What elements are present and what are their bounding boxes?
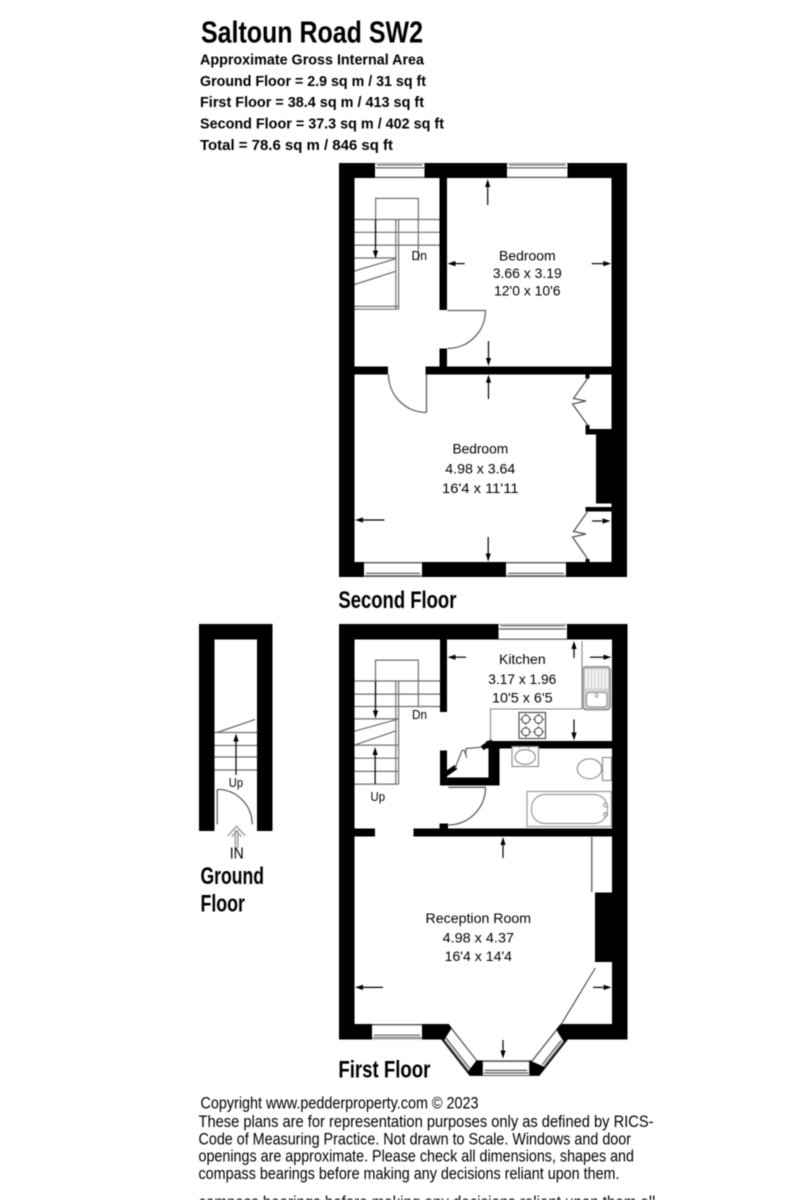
svg-text:Second Floor = 37.3 sq m / 402: Second Floor = 37.3 sq m / 402 sq ft <box>200 116 444 133</box>
svg-text:First Floor = 38.4 sq m / 413: First Floor = 38.4 sq m / 413 sq ft <box>200 94 424 111</box>
svg-text:16'4 x 14'4: 16'4 x 14'4 <box>445 948 513 964</box>
svg-text:Saltoun Road SW2: Saltoun Road SW2 <box>201 15 423 50</box>
svg-text:Code of Measuring Practice. No: Code of Measuring Practice. Not drawn to… <box>199 1129 632 1148</box>
svg-text:4.98 x 4.37: 4.98 x 4.37 <box>443 929 515 945</box>
svg-text:Ground: Ground <box>201 863 265 890</box>
svg-text:Floor: Floor <box>201 891 245 918</box>
svg-text:compass bearings before making: compass bearings before making any decis… <box>199 1164 620 1183</box>
svg-text:Up: Up <box>229 776 243 790</box>
svg-text:Bedroom: Bedroom <box>499 248 556 264</box>
svg-text:Total = 78.6 sq m / 846 sq ft: Total = 78.6 sq m / 846 sq ft <box>200 137 393 154</box>
svg-text:Reception Room: Reception Room <box>426 910 532 926</box>
svg-text:IN: IN <box>230 845 244 862</box>
svg-text:Kitchen: Kitchen <box>499 651 546 667</box>
svg-text:Up: Up <box>371 790 386 804</box>
svg-text:10'5 x 6'5: 10'5 x 6'5 <box>492 689 553 705</box>
svg-text:openings are approximate. Plea: openings are approximate. Please check a… <box>199 1147 635 1166</box>
svg-text:compass bearings before making: compass bearings before making any decis… <box>199 1193 656 1200</box>
svg-text:3.66 x 3.19: 3.66 x 3.19 <box>493 265 562 281</box>
svg-text:Dn: Dn <box>412 708 427 722</box>
svg-text:These plans are for representa: These plans are for representation purpo… <box>199 1112 654 1131</box>
svg-text:Copyright www.pedderproperty.c: Copyright www.pedderproperty.com © 2023 <box>201 1094 479 1113</box>
svg-text:Dn: Dn <box>412 249 428 263</box>
svg-text:16'4 x 11'11: 16'4 x 11'11 <box>442 480 519 496</box>
svg-text:Ground Floor = 2.9 sq m / 31 s: Ground Floor = 2.9 sq m / 31 sq ft <box>200 73 426 90</box>
svg-text:12'0 x 10'6: 12'0 x 10'6 <box>494 283 561 299</box>
svg-text:Bedroom: Bedroom <box>452 441 508 457</box>
svg-text:4.98 x 3.64: 4.98 x 3.64 <box>445 460 515 476</box>
svg-text:Approximate Gross Internal Are: Approximate Gross Internal Area <box>200 51 425 68</box>
svg-text:Second Floor: Second Floor <box>338 587 456 614</box>
svg-text:3.17 x 1.96: 3.17 x 1.96 <box>488 671 556 687</box>
svg-text:First Floor: First Floor <box>338 1057 430 1084</box>
